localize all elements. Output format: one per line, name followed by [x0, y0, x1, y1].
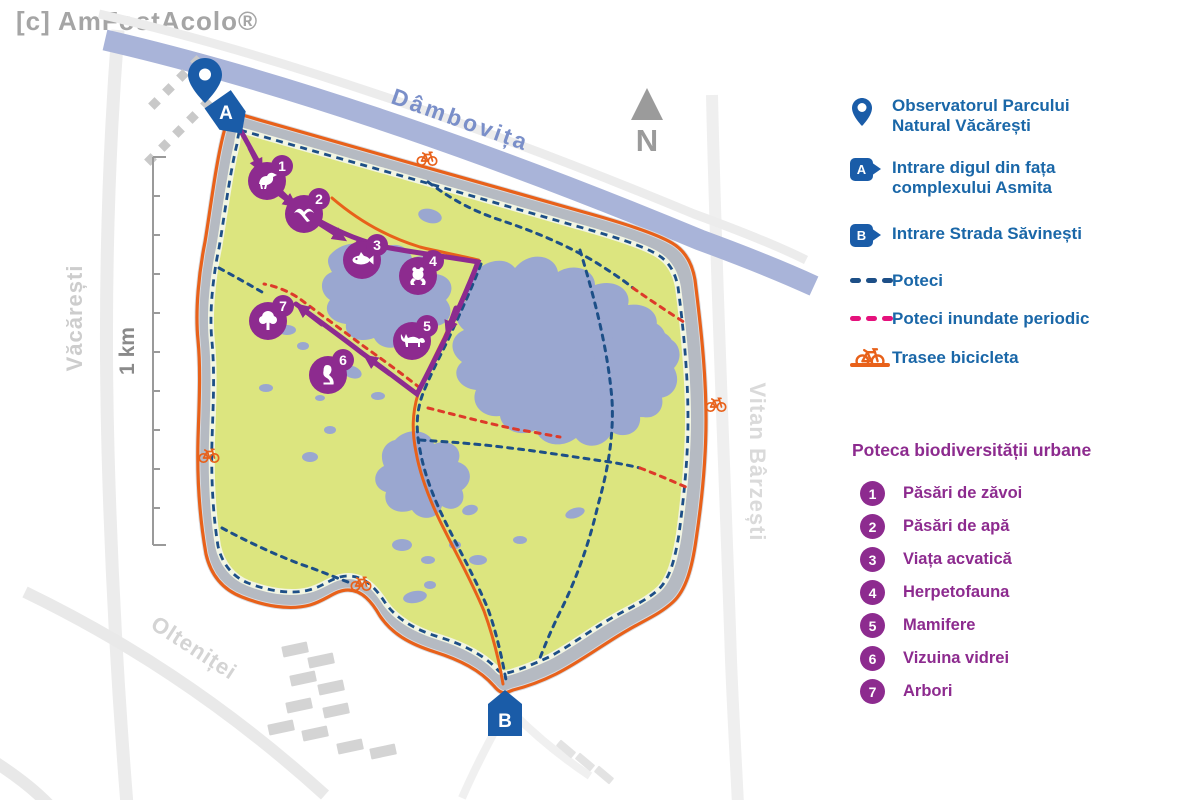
north-arrow: N — [631, 88, 663, 158]
trail-item-2: 2 Păsări de apă — [852, 510, 1192, 543]
legend-row-entrance-b: B Intrare Strada Săvinești — [850, 224, 1190, 247]
trail-panel: Poteca biodiversității urbane 1 Păsări d… — [852, 440, 1192, 708]
trail-title: Poteca biodiversității urbane — [852, 440, 1192, 461]
trail-item-3: 3 Viața acvatică — [852, 543, 1192, 576]
trail-label-5: Mamifere — [903, 616, 975, 635]
trail-item-6: 6 Vizuina vidrei — [852, 642, 1192, 675]
park-map: 1 2 3 — [0, 0, 845, 800]
legend-row-bike: Trasee bicicleta — [850, 343, 1190, 368]
entrance-a-badge: A — [850, 158, 873, 181]
page: [c] AmFostAcolo® — [0, 0, 1195, 800]
road-b-right — [512, 712, 590, 776]
entrance-a-label: A — [219, 103, 233, 124]
legend-observatory-label: Observatorul Parcului Natural Văcărești — [892, 96, 1132, 136]
legend-row-flooded: Poteci inundate periodic — [850, 309, 1190, 329]
station-number: 3 — [373, 237, 381, 253]
trail-number-3: 3 — [860, 547, 885, 572]
trail-label-2: Păsări de apă — [903, 517, 1009, 536]
legend-paths-label: Poteci — [892, 271, 1132, 291]
trail-label-7: Arbori — [903, 682, 953, 701]
pin-icon — [850, 96, 874, 128]
legend-bike-label: Trasee bicicleta — [892, 343, 1132, 368]
trail-number-2: 2 — [860, 514, 885, 539]
legend-row-observatory: Observatorul Parcului Natural Văcărești — [850, 96, 1190, 136]
observatory-pin — [188, 58, 222, 103]
trail-number-4: 4 — [860, 580, 885, 605]
flooded-dash-icon — [850, 316, 893, 321]
entrance-b-badge: B — [850, 224, 873, 247]
trail-number-6: 6 — [860, 646, 885, 671]
street-label-vacaresti: Văcărești — [62, 265, 87, 372]
bike-route-icon — [850, 343, 890, 367]
trail-label-1: Păsări de zăvoi — [903, 484, 1022, 503]
station-number: 2 — [315, 191, 323, 207]
station-number: 1 — [278, 158, 286, 174]
trail-number-5: 5 — [860, 613, 885, 638]
entrance-b-label: B — [498, 711, 512, 732]
road-vacaresti — [106, 30, 127, 800]
scale-bar — [153, 157, 166, 545]
trail-item-4: 4 Herpetofauna — [852, 576, 1192, 609]
entrance-b-marker: B — [488, 690, 522, 736]
trail-number-7: 7 — [860, 679, 885, 704]
scale-label: 1 km — [116, 327, 139, 375]
station-number: 6 — [339, 352, 347, 368]
trail-label-3: Viața acvatică — [903, 550, 1012, 569]
legend-flooded-label: Poteci inundate periodic — [892, 309, 1132, 329]
legend: Observatorul Parcului Natural Văcărești … — [850, 96, 1190, 390]
legend-entrance-b-label: Intrare Strada Săvinești — [892, 224, 1132, 244]
station-number: 5 — [423, 318, 431, 334]
north-label: N — [636, 123, 658, 158]
paths-dash-icon — [850, 278, 893, 283]
street-label-vitan: Vitan Bârzești — [745, 382, 770, 541]
road-corner — [0, 762, 50, 800]
station-number: 4 — [429, 253, 437, 269]
road-vitan — [712, 95, 738, 800]
trail-number-1: 1 — [860, 481, 885, 506]
trail-label-4: Herpetofauna — [903, 583, 1009, 602]
legend-row-paths: Poteci — [850, 271, 1190, 291]
station-number: 7 — [279, 298, 287, 314]
legend-row-entrance-a: A Intrare digul din fața complexului Asm… — [850, 158, 1190, 198]
trail-item-7: 7 Arbori — [852, 675, 1192, 708]
trail-item-5: 5 Mamifere — [852, 609, 1192, 642]
legend-entrance-a-label: Intrare digul din fața complexului Asmit… — [892, 158, 1132, 198]
trail-item-1: 1 Păsări de zăvoi — [852, 477, 1192, 510]
trail-label-6: Vizuina vidrei — [903, 649, 1009, 668]
